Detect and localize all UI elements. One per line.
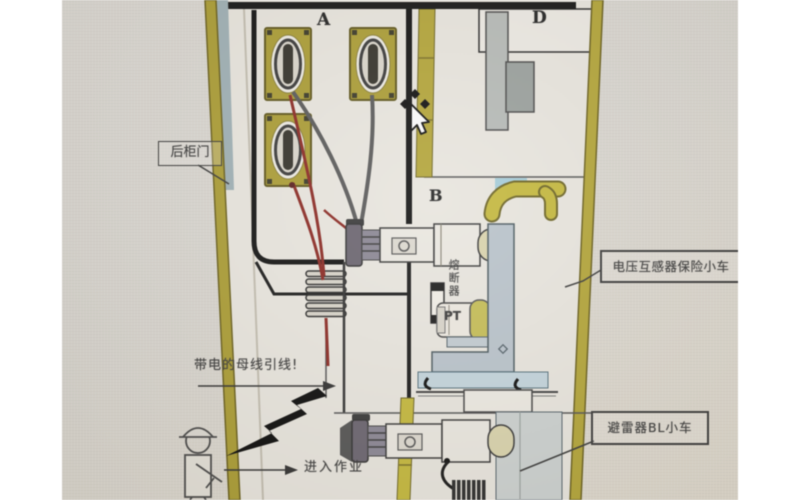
red-cable-drop	[326, 318, 328, 366]
bottom-white-box	[464, 390, 532, 412]
cabinet-top-bar	[213, 2, 576, 9]
bushing-top-left	[265, 28, 311, 100]
cable-connector	[289, 182, 295, 188]
live-busbar-label: 带电的母线引线!	[194, 359, 298, 373]
bushing-top-right	[350, 28, 396, 100]
d-box	[506, 62, 534, 112]
photographed-screen: 后柜门 A B D 电压互感器保险小车 避雷器BL小车 带电的母线引线! 进入作…	[62, 0, 738, 500]
pt-label: PT	[444, 310, 461, 323]
compartment-b-letter: B	[429, 187, 443, 205]
enter-work-label: 进入作业	[304, 461, 364, 475]
arrester-coil	[452, 480, 486, 500]
d-panel	[486, 12, 508, 130]
rear-door-label: 后柜门	[158, 141, 222, 166]
worker-figure	[179, 428, 222, 500]
arrester-trolley-label: 避雷器BL小车	[591, 411, 709, 445]
vt-fuse-trolley-label: 电压互感器保险小车	[600, 250, 738, 283]
compartment-a-letter: A	[317, 11, 330, 30]
compartment-d-letter: D	[532, 9, 547, 28]
floor-plate	[418, 372, 548, 388]
